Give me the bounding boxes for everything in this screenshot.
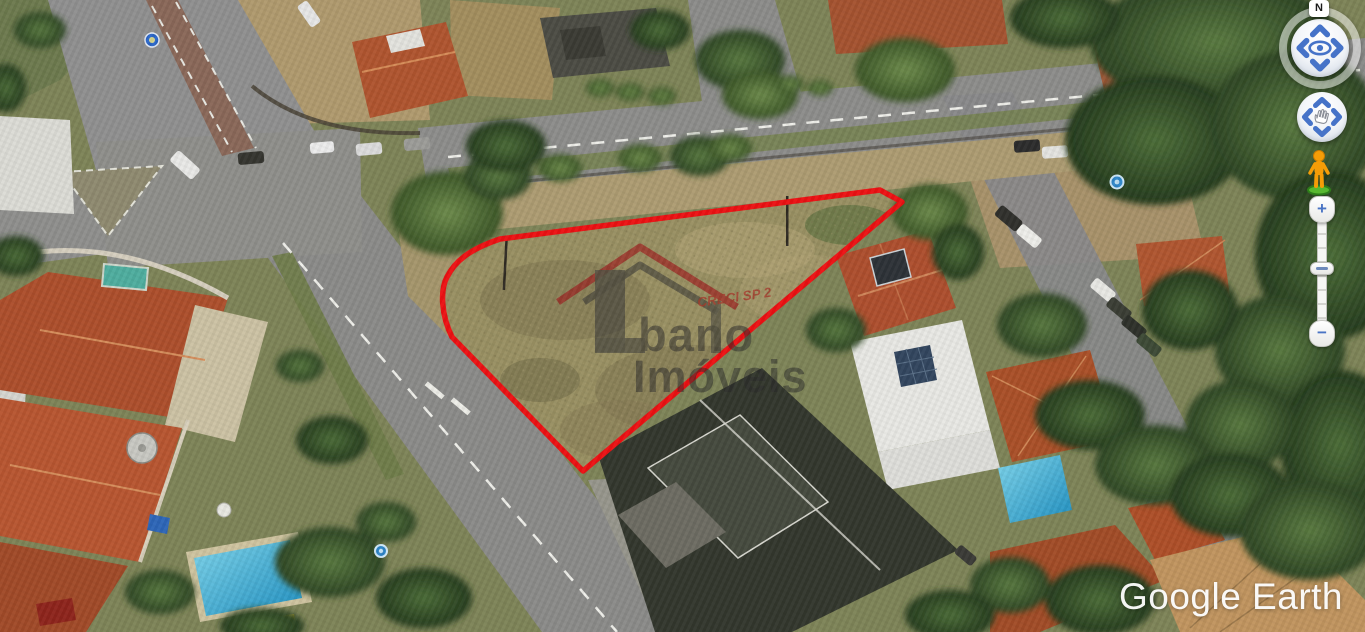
photo-marker[interactable]	[1111, 176, 1124, 189]
pegman[interactable]	[1305, 148, 1333, 196]
pan-down-arrow-icon	[1316, 129, 1329, 135]
zoom-control[interactable]: + −	[1309, 196, 1335, 347]
traffic-sign	[145, 33, 159, 47]
look-down-arrow-icon	[1313, 61, 1328, 68]
north-badge[interactable]: N	[1309, 0, 1329, 17]
photo-marker[interactable]	[375, 545, 387, 557]
hand-icon	[1314, 108, 1329, 124]
look-right-arrow-icon	[1333, 41, 1340, 56]
pan-left-arrow-icon	[1305, 111, 1311, 124]
zoom-in-button[interactable]: +	[1309, 196, 1335, 223]
pegman-icon	[1308, 151, 1330, 195]
watermark-brand-line2: Imóveis	[633, 351, 808, 402]
pan-up-arrow-icon	[1316, 100, 1329, 106]
eye-icon	[1310, 42, 1331, 54]
google-earth-wordmark: Google Earth	[1119, 576, 1343, 618]
zoom-out-button[interactable]: −	[1309, 320, 1335, 347]
pan-joystick[interactable]	[1297, 92, 1347, 142]
look-left-arrow-icon	[1299, 41, 1306, 56]
pan-right-arrow-icon	[1334, 111, 1340, 124]
look-disc[interactable]	[1291, 19, 1349, 77]
look-up-arrow-icon	[1313, 27, 1328, 34]
zoom-slider-handle[interactable]	[1310, 262, 1334, 275]
satellite-map-canvas[interactable]: bano Imóveis CRECI SP 2	[0, 0, 1365, 632]
look-joystick[interactable]: N	[1276, 4, 1362, 90]
